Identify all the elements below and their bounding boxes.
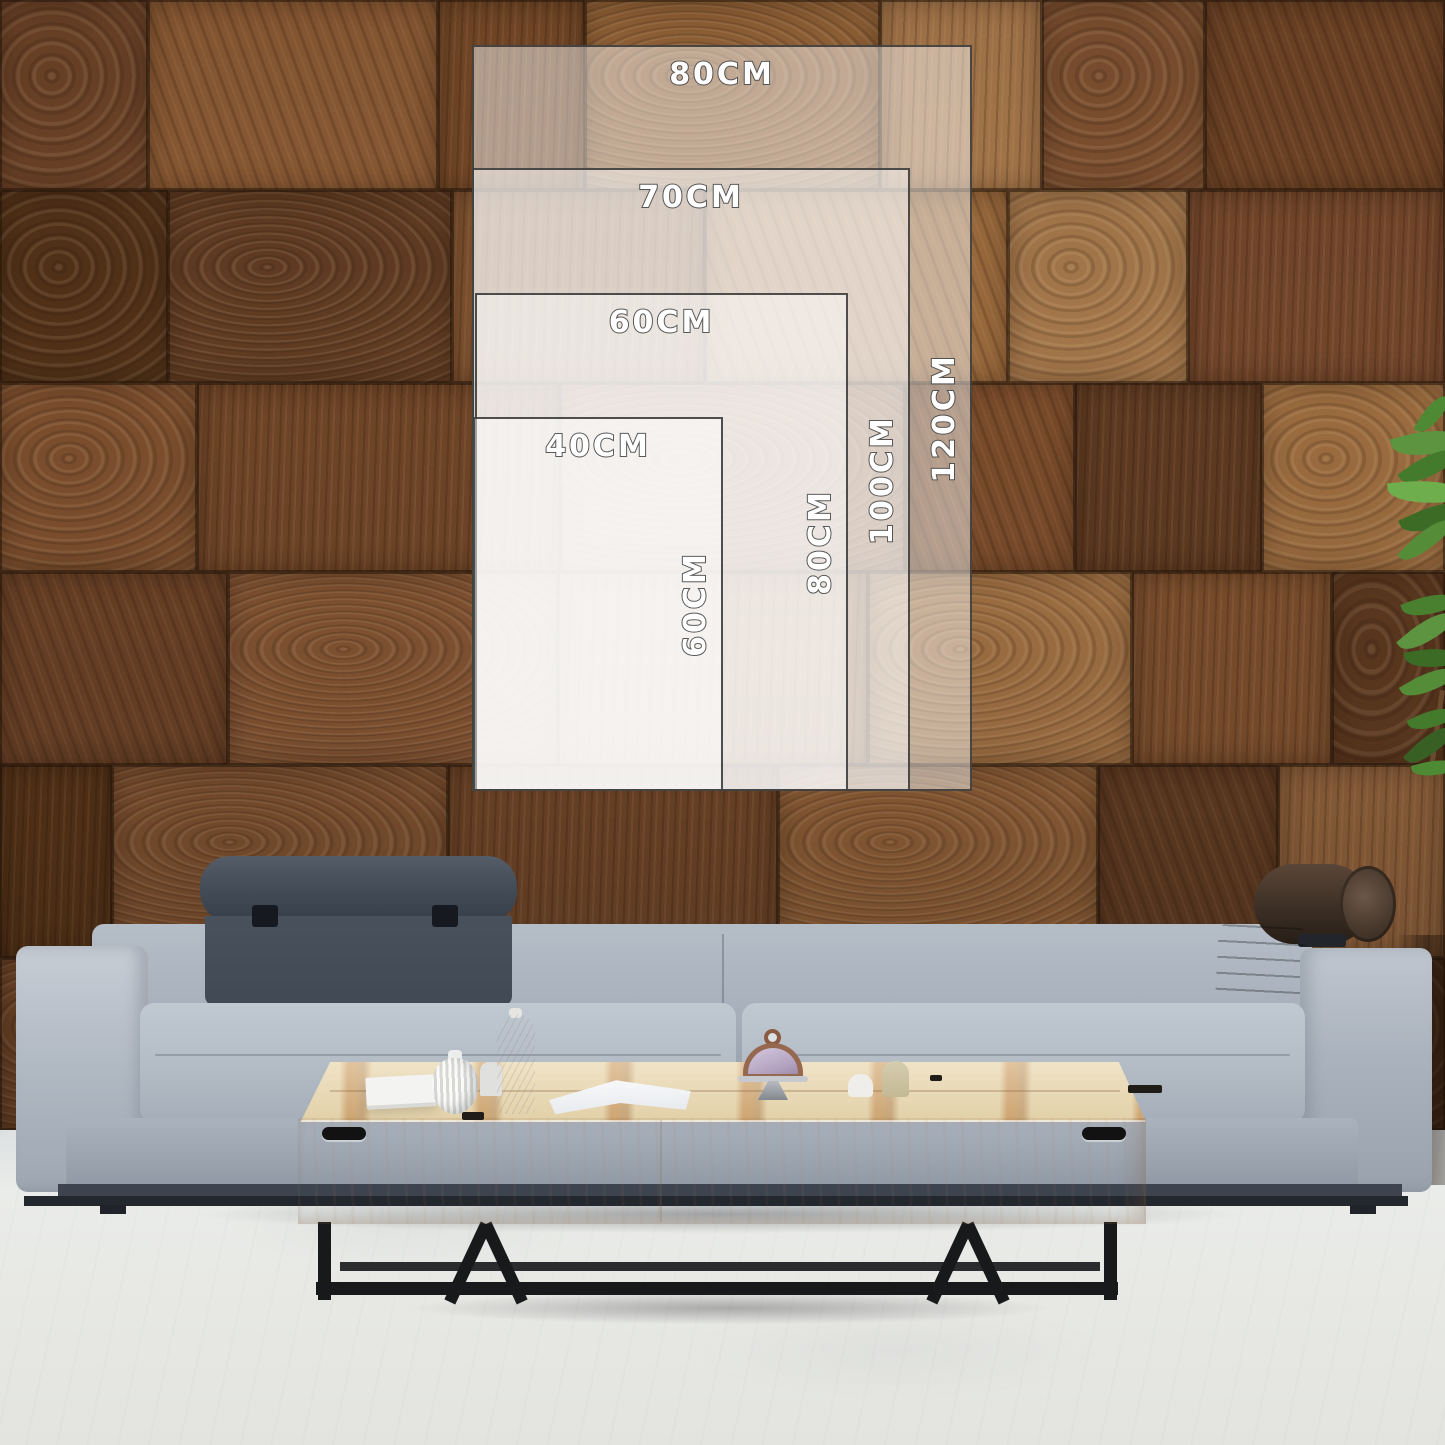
- seat-piping: [155, 1054, 721, 1056]
- table-top-slot: [462, 1112, 484, 1120]
- bolster-end-cap: [1340, 866, 1396, 942]
- decor-egg-white: [848, 1074, 873, 1097]
- size-height-label-120: 120CM: [927, 353, 962, 483]
- size-width-label-70: 70CM: [638, 180, 744, 215]
- sofa-foot: [1350, 1205, 1376, 1214]
- table-floor-shadow: [300, 1286, 1160, 1330]
- headrest-quilted-panel: [205, 916, 512, 1006]
- table-handle-right: [1082, 1127, 1126, 1140]
- size-height-label-60: 60CM: [678, 551, 713, 657]
- table-handle-left: [322, 1127, 366, 1140]
- headrest-notch: [432, 905, 458, 927]
- sofa-foot: [100, 1205, 126, 1214]
- table-module-seam: [660, 1120, 662, 1222]
- headrest-roll-cushion: [200, 856, 517, 922]
- size-width-label-40: 40CM: [545, 429, 651, 464]
- size-height-label-80: 80CM: [803, 489, 838, 595]
- size-height-label-100: 100CM: [865, 415, 900, 545]
- decor-egg-khaki: [882, 1061, 909, 1097]
- decor-gourd-vase: [432, 1058, 478, 1114]
- headrest-notch: [252, 905, 278, 927]
- size-width-label-80: 80CM: [669, 57, 775, 92]
- table-front-face: [298, 1118, 1146, 1224]
- size-panel-40x60: 40CM 60CM: [473, 417, 723, 791]
- seat-piping: [757, 1054, 1290, 1056]
- product-size-guide-mockup: 80CM 120CM 70CM 100CM 60CM 80CM 40CM 60C…: [0, 0, 1445, 1445]
- size-width-label-60: 60CM: [609, 305, 715, 340]
- decor-tall-marble-vase: [497, 1014, 535, 1114]
- table-top-slot: [1128, 1085, 1162, 1093]
- sofa-backrest-seam: [722, 934, 724, 1014]
- decor-book-stack: [365, 1074, 436, 1106]
- table-top-slot: [930, 1075, 942, 1081]
